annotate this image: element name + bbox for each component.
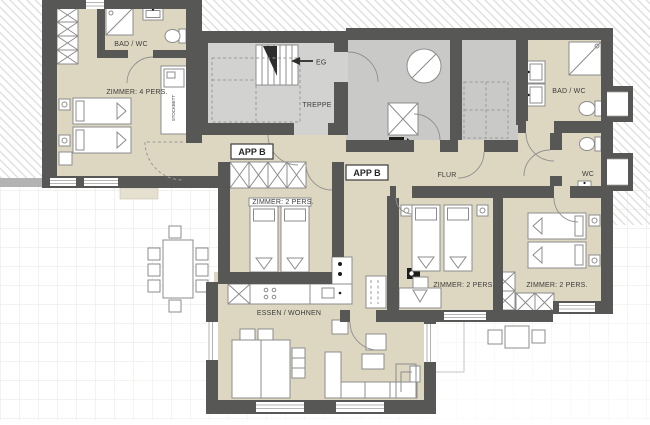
label-treppe: TREPPE — [302, 102, 331, 109]
floor-plan-drawing: STOCKBETT — [0, 0, 650, 420]
shower-icon — [569, 42, 601, 75]
shower-icon — [106, 8, 133, 35]
label-app-b-2: APP B — [353, 168, 381, 178]
label-zimmer-2b: ZIMMER: 2 PERS. — [433, 282, 494, 289]
coffee-table — [332, 320, 348, 334]
label-zimmer-4: ZIMMER: 4 PERS. — [106, 89, 167, 96]
toilet-icon — [580, 137, 602, 151]
bunk-bed: STOCKBETT — [161, 66, 187, 134]
label-app-b-1: APP B — [238, 147, 266, 157]
label-eg: EG — [316, 60, 327, 67]
apartment-tag-2: APP B — [346, 165, 388, 180]
shaft-icon — [388, 103, 418, 135]
label-zimmer-2c: ZIMMER: 2 PERS. — [526, 282, 587, 289]
wardrobe-icon — [57, 8, 78, 64]
label-essen-wohnen: ESSEN / WOHNEN — [257, 310, 321, 317]
stockbett-label: STOCKBETT — [171, 95, 176, 122]
sink-icon — [527, 61, 545, 106]
boiler-icon — [407, 49, 441, 83]
sink-icon — [143, 8, 163, 20]
floor-plan-page: STOCKBETT — [0, 0, 650, 420]
label-flur: FLUR — [437, 172, 456, 179]
toilet-icon — [165, 29, 186, 43]
apartment-tag-1: APP B — [231, 144, 273, 159]
wardrobe-icon — [230, 162, 306, 188]
label-wc: WC — [582, 171, 594, 178]
tall-cabinet — [366, 276, 386, 308]
label-bad-wc-left: BAD / WC — [114, 41, 148, 48]
entry-step — [120, 188, 158, 199]
label-zimmer-2a: ZIMMER: 2 PERS. — [252, 199, 313, 206]
toilet-icon — [579, 101, 602, 116]
label-bad-wc-right: BAD / WC — [552, 88, 586, 95]
